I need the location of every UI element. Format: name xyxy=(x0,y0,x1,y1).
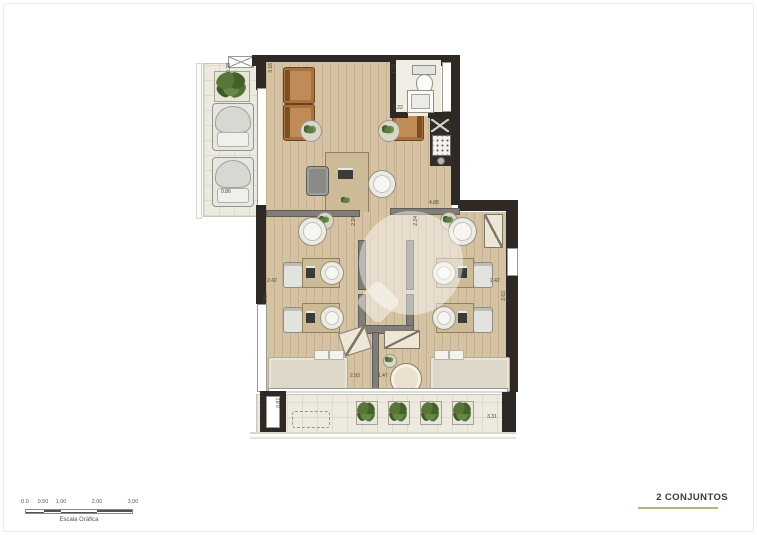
laptop-icon xyxy=(338,168,353,179)
scale-segment xyxy=(26,512,44,514)
wall-left-upper xyxy=(256,58,266,90)
dimension-label: 1.47 xyxy=(378,373,388,379)
scale-tick: 1.00 xyxy=(56,499,67,505)
terrace-wall-right-block xyxy=(502,392,516,432)
condenser-outline xyxy=(292,411,330,428)
plan-title: 2 CONJUNTOS xyxy=(598,492,728,503)
dimension-label: 3.31 xyxy=(487,414,497,420)
wall-left-offices xyxy=(256,212,266,304)
laptop-icon xyxy=(458,311,467,323)
scale-tick: 2.00 xyxy=(92,499,103,505)
kitchen-sink-icon xyxy=(431,119,449,132)
partition-left xyxy=(266,210,360,217)
dimension-label: 2.42 xyxy=(267,278,277,284)
office-chair xyxy=(306,166,329,196)
pillow-icon xyxy=(434,350,449,360)
dimension-label: 2.24 xyxy=(413,216,419,226)
guest-chair xyxy=(320,261,344,285)
guest-chair xyxy=(320,306,344,330)
plant-icon xyxy=(421,402,439,422)
corner-chair xyxy=(298,217,327,246)
dimension-label: 4.88 xyxy=(429,200,439,206)
dimension-label: 0.86 xyxy=(221,189,231,195)
dimension-label: 3.16 xyxy=(268,63,274,73)
plant-icon xyxy=(304,124,316,136)
corridor-door-icon xyxy=(384,330,420,349)
unit-divider xyxy=(372,332,379,394)
task-chair xyxy=(283,262,303,288)
dimension-label: 2.24 xyxy=(351,216,357,226)
terrace-left-outer-rail xyxy=(196,63,202,219)
plant-icon xyxy=(382,124,394,136)
wall-right-upper xyxy=(451,55,460,205)
pillow-icon xyxy=(449,350,464,360)
scale-segment xyxy=(61,512,96,514)
dimension-label: 1.23 xyxy=(391,64,397,74)
task-chair xyxy=(283,307,303,333)
guest-chair xyxy=(368,170,396,198)
reception-desk xyxy=(325,152,369,218)
laptop-icon xyxy=(306,266,315,278)
dimension-label: 1.22 xyxy=(393,105,403,111)
scale-tick: 0.0 xyxy=(21,499,29,505)
plant-icon xyxy=(341,196,350,205)
dimension-label: 2.62 xyxy=(501,291,507,301)
sink-icon xyxy=(407,90,434,113)
terrace-chair xyxy=(212,103,254,151)
guest-chair xyxy=(432,306,456,330)
plant-icon xyxy=(385,356,393,364)
task-chair xyxy=(473,307,493,333)
knob-icon xyxy=(437,157,445,165)
dimension-label: 2.60 xyxy=(263,293,269,303)
scale-tick: 3.00 xyxy=(128,499,139,505)
scale-caption: Escala Gráfica xyxy=(25,517,133,523)
daybed xyxy=(268,357,348,392)
terrace-chair xyxy=(212,157,254,207)
daybed xyxy=(430,357,510,392)
task-chair xyxy=(473,262,493,288)
plant-icon xyxy=(453,402,471,422)
plant-icon xyxy=(357,402,375,422)
floorplan-canvas: 0.28 0.86 3.16 1.23 1.22 4.88 2.24 2.24 … xyxy=(0,0,757,535)
title-underline xyxy=(638,507,718,509)
dimension-label: 2.42 xyxy=(490,278,500,284)
laptop-icon xyxy=(306,311,315,323)
appliance-icon xyxy=(432,135,451,156)
pillow-icon xyxy=(314,350,329,360)
terrace-bottom-rail xyxy=(250,437,516,439)
window-office-left xyxy=(257,304,267,392)
dimension-label: 0.87 xyxy=(276,398,282,408)
terrace-bottom-rail xyxy=(250,432,516,434)
dimension-label: 0.28 xyxy=(226,63,232,73)
armchair-icon xyxy=(283,67,315,104)
scale-bar xyxy=(25,509,133,514)
scale-segment xyxy=(44,512,62,514)
plant-icon xyxy=(216,72,246,98)
dimension-label: 2.93 xyxy=(350,373,360,379)
entry-door-icon xyxy=(484,214,503,248)
pillow-icon xyxy=(329,350,344,360)
plant-icon xyxy=(389,402,407,422)
scale-tick: 0.50 xyxy=(38,499,49,505)
bathroom-wall-bottom xyxy=(390,112,408,118)
scale-segment xyxy=(97,512,132,514)
window-right xyxy=(507,248,518,276)
